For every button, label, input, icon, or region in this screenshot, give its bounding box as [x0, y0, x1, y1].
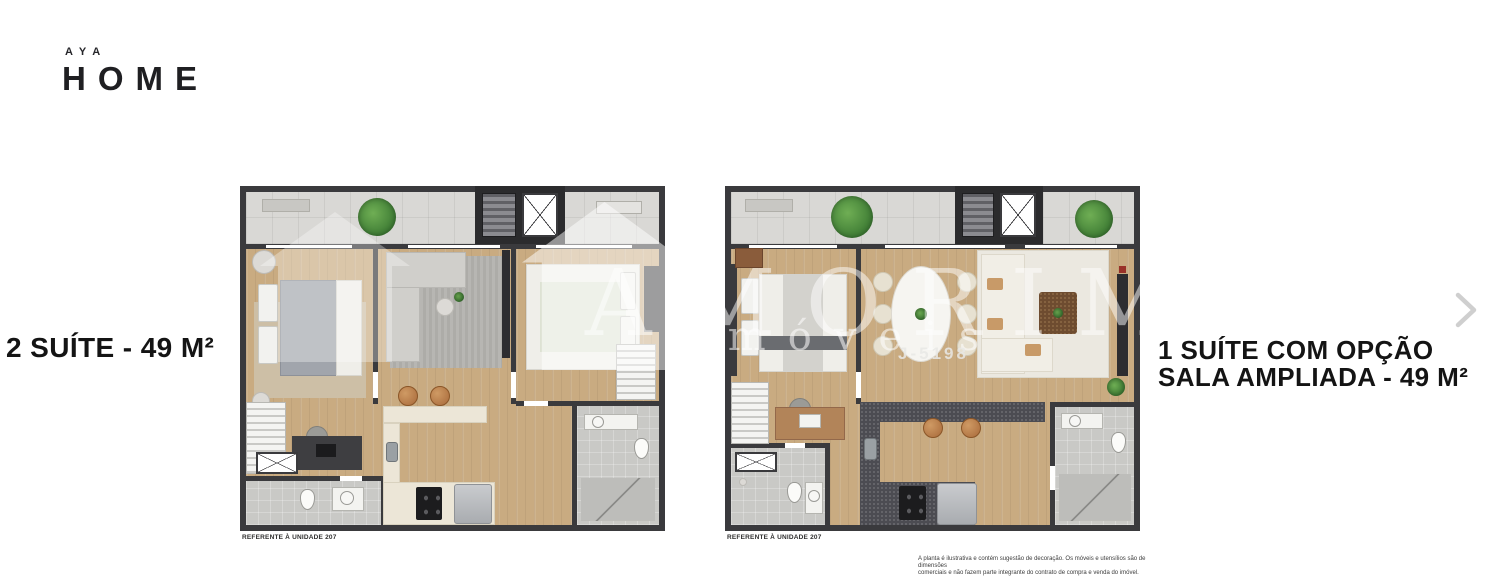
kitchen-sink — [386, 442, 398, 462]
disclaimer-text: A planta é ilustrativa e contém sugestão… — [918, 556, 1158, 577]
shower-area — [581, 478, 655, 521]
stove — [416, 487, 442, 520]
door-opening — [524, 401, 548, 406]
balcony-plant-icon — [1075, 200, 1113, 238]
brand-logo: AYA HOME — [62, 46, 209, 98]
stove — [899, 486, 926, 520]
watermark-license-text: J-5198 — [898, 344, 969, 364]
bathroom-vanity — [1061, 413, 1103, 429]
chevron-right-icon — [1452, 290, 1482, 330]
coffee-table — [436, 298, 454, 316]
balcony-bench — [262, 199, 310, 212]
elevator-core — [955, 186, 1043, 244]
elevator-core — [475, 186, 565, 244]
carousel-next-button[interactable] — [1452, 290, 1482, 330]
wall — [825, 443, 830, 525]
left-plan-title: 2 SUÍTE - 49 M² — [6, 332, 214, 364]
elevator-shaft-icon — [522, 193, 558, 237]
sink — [1069, 415, 1081, 427]
window — [408, 244, 500, 249]
brand-home-text: HOME — [62, 60, 209, 98]
kitchen-stool — [430, 386, 450, 406]
fridge — [937, 483, 977, 525]
tv-panel — [502, 250, 510, 358]
small-plant-icon — [454, 292, 464, 302]
pillow — [258, 284, 278, 322]
sink — [592, 416, 604, 428]
kitchen-stool — [398, 386, 418, 406]
sink — [340, 491, 354, 505]
window — [885, 244, 1005, 249]
right-plan-title-line1: 1 SUÍTE COM OPÇÃO — [1158, 337, 1468, 364]
shower-box — [735, 452, 777, 472]
window — [1025, 244, 1117, 249]
balcony-plant-icon — [358, 198, 396, 236]
brand-aya-text: AYA — [65, 46, 209, 58]
right-plan-title: 1 SUÍTE COM OPÇÃO SALA AMPLIADA - 49 M² — [1158, 337, 1468, 391]
pillow — [258, 326, 278, 364]
closet-shelves — [731, 382, 769, 444]
door-opening — [511, 372, 516, 398]
kitchen-stool — [961, 418, 981, 438]
disclaimer-line1: A planta é ilustrativa e contém sugestão… — [918, 556, 1158, 570]
kitchen-counter — [860, 402, 1045, 422]
right-plan-footnote: REFERENTE À UNIDADE 207 — [727, 534, 822, 541]
shower-area — [1059, 474, 1131, 521]
right-plan-title-line2: SALA AMPLIADA - 49 M² — [1158, 364, 1468, 391]
kitchen-sink — [864, 438, 877, 460]
stairs-icon — [962, 193, 994, 237]
sink — [808, 490, 820, 502]
stairs-icon — [482, 193, 516, 237]
left-plan-footnote: REFERENTE À UNIDADE 207 — [242, 534, 337, 541]
kitchen-stool — [923, 418, 943, 438]
balcony-plant-icon — [831, 196, 873, 238]
kitchen-counter — [383, 406, 487, 423]
shower-box — [256, 452, 298, 474]
door-opening — [373, 372, 378, 398]
page: AYA HOME 2 SUÍTE - 49 M² 1 SUÍTE COM OPÇ… — [0, 0, 1498, 587]
desk-deco — [799, 414, 821, 428]
balcony-bench — [745, 199, 793, 212]
shower-drain — [739, 478, 747, 486]
disclaimer-line2: comerciais e não fazem parte integrante … — [918, 570, 1158, 577]
door-opening — [856, 372, 861, 398]
elevator-shaft-icon — [1000, 193, 1036, 237]
small-plant-icon — [1107, 378, 1125, 396]
laptop — [316, 444, 336, 457]
fridge — [454, 484, 492, 524]
